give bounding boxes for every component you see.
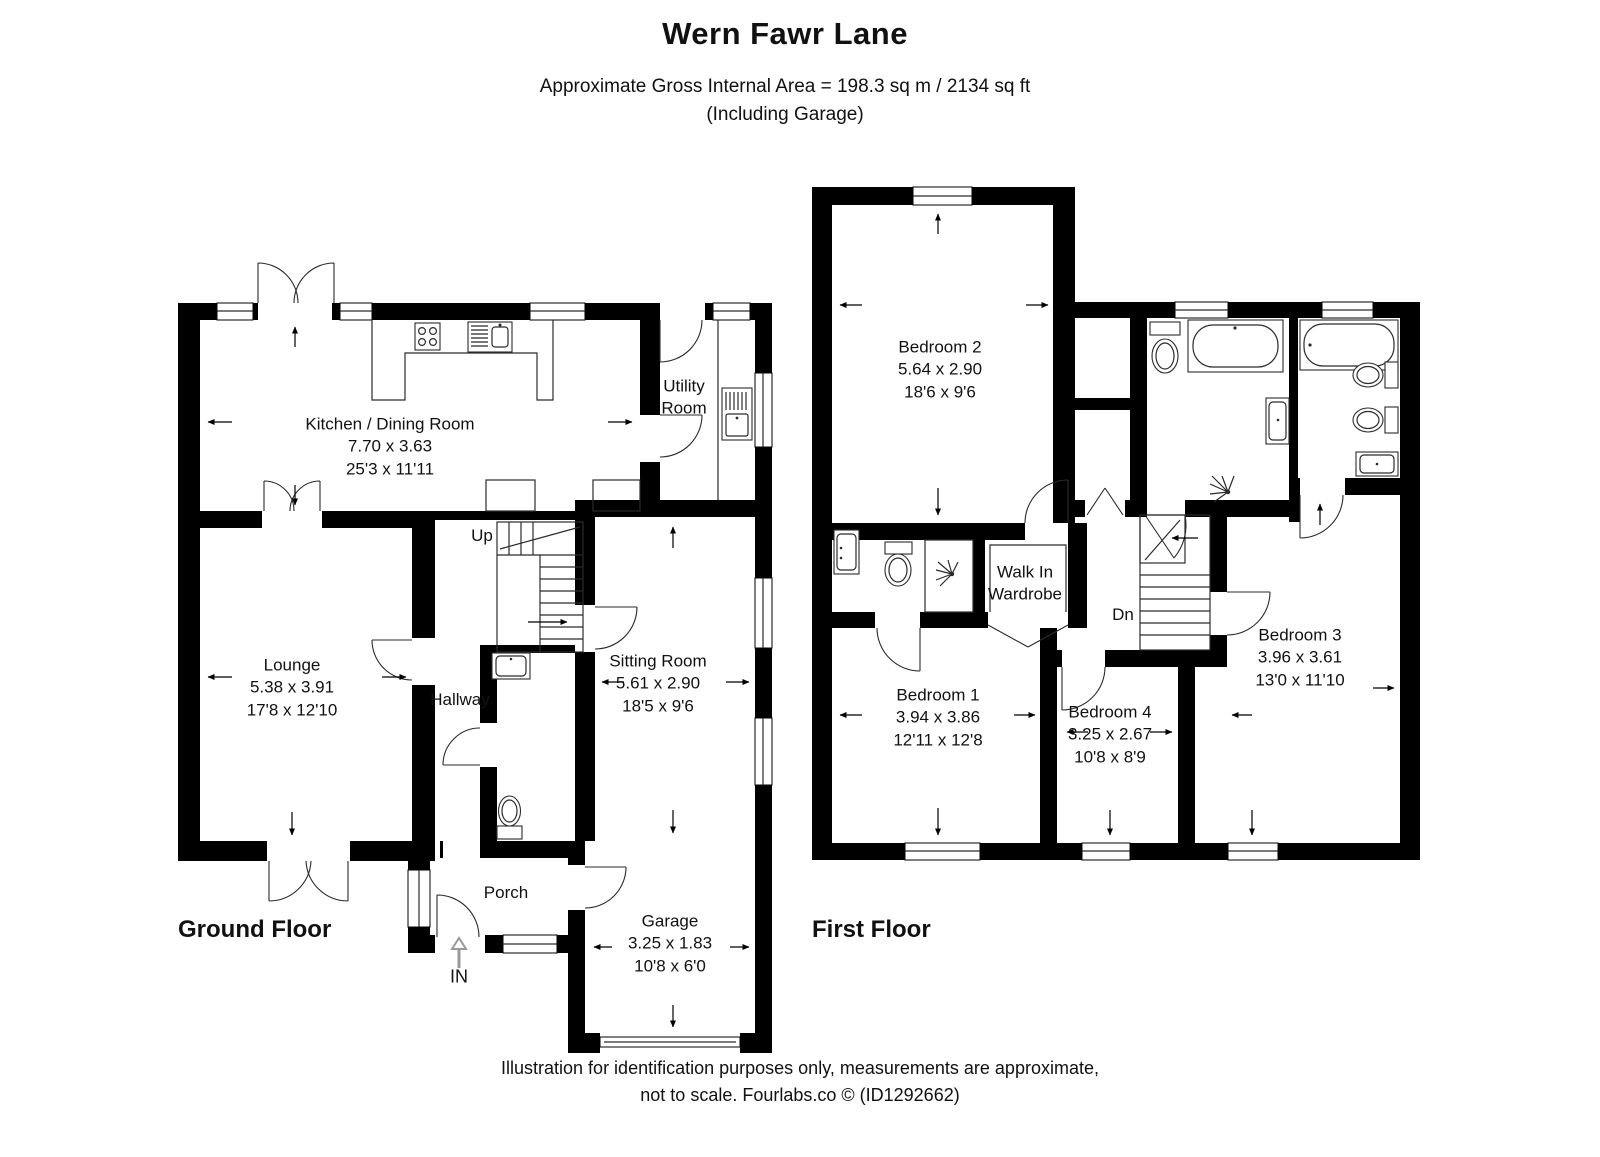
cloakroom-toilet-icon <box>497 796 522 839</box>
footer-line1: Illustration for identification purposes… <box>0 1055 1600 1082</box>
hob-icon <box>415 323 440 350</box>
garage-label: Garage 3.25 x 1.83 10'8 x 6'0 <box>628 910 712 977</box>
entrance-in-label: IN <box>450 967 468 988</box>
entrance-arrow <box>452 938 466 968</box>
bedroom3-label: Bedroom 3 3.96 x 3.61 13'0 x 11'10 <box>1255 624 1344 691</box>
ensuite2-sink-icon <box>1356 452 1398 476</box>
sitting-room-label: Sitting Room 5.61 x 2.90 18'5 x 9'6 <box>609 650 706 717</box>
stairs-down-icon <box>1140 515 1210 650</box>
first-floor-title: First Floor <box>812 916 931 944</box>
stairs-down-label: Dn <box>1112 605 1134 625</box>
ensuite1-toilet-icon <box>885 542 912 586</box>
bathroom-bath-icon <box>1188 320 1283 372</box>
floorplan-page: Wern Fawr Lane Approximate Gross Interna… <box>0 0 1600 1157</box>
bathroom-shower-icon <box>1210 476 1234 502</box>
ensuite2-toilet-icons <box>1353 362 1398 433</box>
utility-sink-icon <box>718 320 752 500</box>
stairs-up-label: Up <box>471 526 493 546</box>
header: Wern Fawr Lane Approximate Gross Interna… <box>0 0 1570 126</box>
hallway-label: Hallway <box>430 689 490 711</box>
ensuite1-shower-icon <box>925 540 973 612</box>
bathroom-toilet-icon <box>1150 322 1180 373</box>
bedroom1-label: Bedroom 1 3.94 x 3.86 12'11 x 12'8 <box>893 684 982 751</box>
lounge-label: Lounge 5.38 x 3.91 17'8 x 12'10 <box>247 654 338 721</box>
walk-in-wardrobe-label: Walk In Wardrobe <box>988 562 1062 607</box>
utility-room-label: Utility Room <box>661 376 706 421</box>
kitchen-label: Kitchen / Dining Room 7.70 x 3.63 25'3 x… <box>305 413 474 480</box>
bathroom-sink-icon <box>1266 398 1289 444</box>
footer-disclaimer: Illustration for identification purposes… <box>0 1055 1600 1109</box>
footer-line2: not to scale. Fourlabs.co © (ID1292662) <box>0 1082 1600 1109</box>
cloakroom-sink-icon <box>492 653 530 679</box>
stairs-up-icon <box>497 522 583 652</box>
porch-label: Porch <box>484 882 528 904</box>
page-title: Wern Fawr Lane <box>0 16 1570 52</box>
bedroom2-label: Bedroom 2 5.64 x 2.90 18'6 x 9'6 <box>898 336 982 403</box>
kitchen-sink-icon <box>468 322 512 352</box>
including-garage-line: (Including Garage) <box>0 104 1570 126</box>
ground-floor-title: Ground Floor <box>178 916 331 944</box>
gross-area-line: Approximate Gross Internal Area = 198.3 … <box>0 76 1570 98</box>
bedroom4-label: Bedroom 4 3.25 x 2.67 10'8 x 8'9 <box>1068 701 1152 768</box>
ensuite1-sink-icon <box>834 530 859 574</box>
ensuite2-bath-icon <box>1300 320 1398 370</box>
